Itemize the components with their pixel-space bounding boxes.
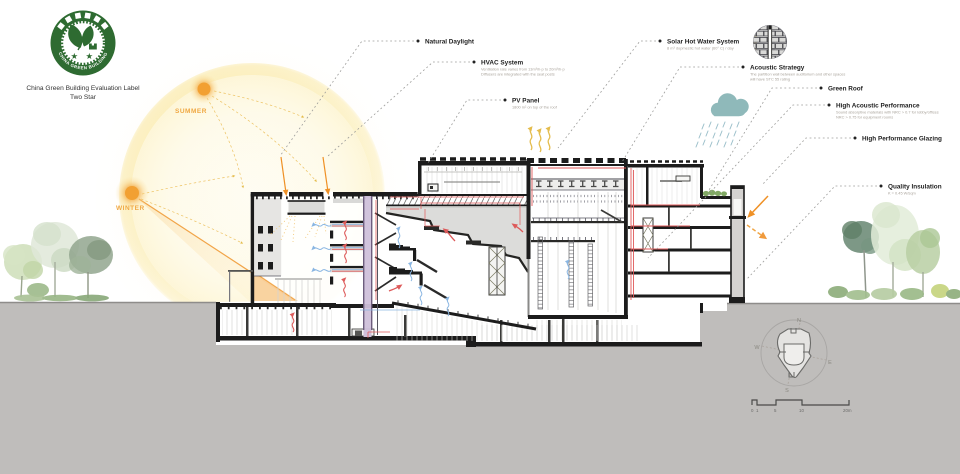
svg-text:Green Roof: Green Roof — [828, 86, 864, 93]
svg-text:W: W — [754, 345, 760, 351]
svg-text:1800 m² on top of the roof: 1800 m² on top of the roof — [512, 105, 558, 110]
svg-text:Two Star: Two Star — [70, 94, 97, 101]
svg-text:WINTER: WINTER — [116, 205, 145, 212]
svg-text:S: S — [785, 388, 789, 394]
svg-text:PV Panel: PV Panel — [512, 98, 540, 105]
svg-text:K = 0.45 W/sqm: K = 0.45 W/sqm — [888, 191, 916, 196]
svg-text:HVAC System: HVAC System — [481, 60, 523, 67]
svg-text:High Performance Glazing: High Performance Glazing — [862, 136, 942, 143]
svg-text:will have STC 55 rating: will have STC 55 rating — [750, 77, 790, 82]
svg-text:20m: 20m — [843, 408, 852, 413]
svg-text:★: ★ — [86, 51, 94, 61]
svg-text:N: N — [797, 318, 801, 324]
svg-text:E: E — [828, 360, 832, 366]
svg-text:Acoustic Strategy: Acoustic Strategy — [750, 65, 805, 72]
svg-text:China Green Building Evaluatio: China Green Building Evaluation Label — [26, 85, 140, 92]
svg-text:10: 10 — [799, 408, 804, 413]
svg-text:SUMMER: SUMMER — [175, 108, 207, 115]
svg-text:8 m³ dopmestic hot water (60°: 8 m³ dopmestic hot water (60° C) / day — [667, 46, 734, 51]
svg-text:NRC > 0.75 for equipment rooms: NRC > 0.75 for equipment rooms — [836, 115, 893, 120]
svg-text:High Acoustic Performance: High Acoustic Performance — [836, 103, 920, 110]
svg-text:Quality Insulation: Quality Insulation — [888, 184, 942, 191]
svg-text:Solar Hot Water System: Solar Hot Water System — [667, 39, 740, 46]
svg-text:Natural Daylight: Natural Daylight — [425, 39, 475, 46]
svg-text:★: ★ — [71, 51, 79, 61]
svg-text:Diffusers are integrated with: Diffusers are integrated with the seat p… — [481, 72, 555, 77]
